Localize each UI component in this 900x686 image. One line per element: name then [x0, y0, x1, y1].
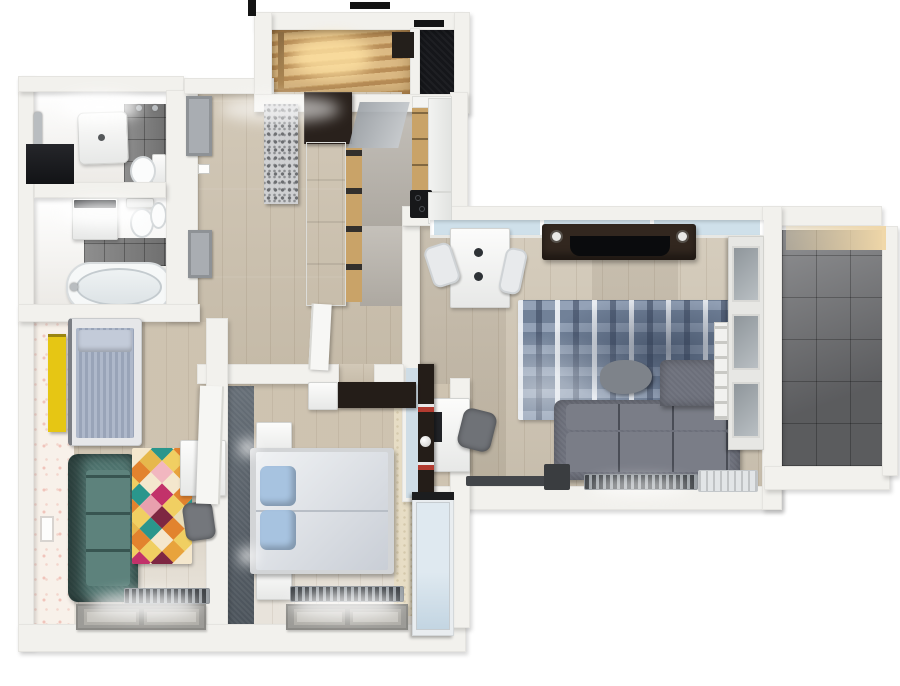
hallway-wall-frame: [188, 230, 212, 278]
sofa-chaise: [660, 360, 720, 406]
window-pane: [294, 609, 345, 625]
ladder-shelf: [714, 322, 728, 420]
desk-grommet-icon: [474, 272, 483, 281]
terrazzo-wardrobe: [264, 104, 298, 204]
bathroom-niche: [26, 144, 74, 184]
bathtub-basin: [76, 268, 162, 306]
kitchen-counter: [428, 98, 452, 192]
wardrobe-top-edge: [412, 492, 454, 500]
wall-stair-top: [254, 12, 462, 30]
kids-open-door: [196, 386, 224, 505]
faucet-icon: [152, 105, 158, 111]
balcony-floor: [782, 230, 882, 466]
balcony-warm-light: [786, 226, 886, 250]
wall-bath-top: [18, 76, 184, 92]
hallway-wall-frame: [186, 96, 212, 156]
towel-bar: [34, 112, 42, 148]
cooktop-burner-icon: [415, 195, 421, 201]
floor-plan-render: [0, 0, 900, 686]
kids-window: [76, 604, 206, 630]
pillow: [260, 466, 296, 506]
window-pane: [84, 609, 139, 625]
living-radiator: [584, 474, 698, 490]
wardrobe-doors: [416, 502, 450, 630]
bidet: [150, 202, 167, 229]
kitchen-wood-cabinets: [412, 108, 428, 190]
hallway-open-door: [308, 304, 331, 371]
side-table: [544, 464, 570, 490]
speaker-icon: [550, 230, 563, 243]
wall-radiator: [466, 476, 556, 486]
stairwell-beam: [392, 32, 414, 58]
faucet-icon: [136, 105, 142, 111]
washing-machine-panel: [74, 200, 116, 208]
sphere-lamp-icon: [420, 436, 431, 447]
ac-unit: [698, 470, 758, 492]
tv-screen: [570, 236, 670, 256]
living-desk: [450, 228, 510, 308]
bedroom-dark-shelf: [338, 382, 416, 408]
wall-wc-divider: [34, 182, 166, 198]
bedroom-dresser: [308, 382, 338, 410]
bedroom-radiator: [290, 586, 404, 602]
cooktop-burner-icon: [419, 206, 425, 212]
window-pane: [144, 609, 199, 625]
dark-wardrobe: [304, 92, 352, 144]
closet-floor: [420, 30, 454, 94]
kids-wall-frame: [40, 516, 54, 542]
wall-living-right: [762, 206, 782, 510]
dining-nook-floor: [360, 226, 402, 306]
kids-teal-sofa-seat: [86, 470, 130, 586]
white-cabinet-run: [306, 142, 346, 306]
speaker-icon: [676, 230, 689, 243]
wall-balcony-right: [882, 226, 898, 476]
tub-faucet-icon: [70, 283, 78, 291]
sofa-back-cushions: [566, 404, 730, 430]
cabinet-wood-side: [346, 148, 362, 302]
yellow-shelf: [48, 334, 66, 432]
sofa-seat-cushions: [566, 432, 730, 472]
kids-pillow: [78, 330, 132, 352]
bookshelf: [418, 364, 434, 496]
bedroom-window: [286, 604, 408, 630]
wall-hall-bedroom-b: [374, 364, 404, 384]
thermostat: [198, 164, 210, 174]
cabinet-glass-panel: [732, 382, 760, 438]
stair-rail: [278, 32, 284, 90]
kids-chair: [182, 500, 217, 542]
ceiling-mark: [350, 2, 390, 9]
stairwell-stairs: [272, 30, 410, 94]
wall-balcony-bottom: [764, 466, 890, 490]
cabinet-glass-panel: [732, 314, 760, 370]
pillow: [260, 510, 296, 550]
shower-drain-icon: [98, 134, 105, 141]
toilet-tank: [126, 198, 154, 208]
cabinet-glass-panel: [732, 246, 760, 302]
desk-grommet-icon: [474, 248, 483, 257]
kids-radiator: [124, 588, 210, 604]
window-pane: [350, 609, 401, 625]
